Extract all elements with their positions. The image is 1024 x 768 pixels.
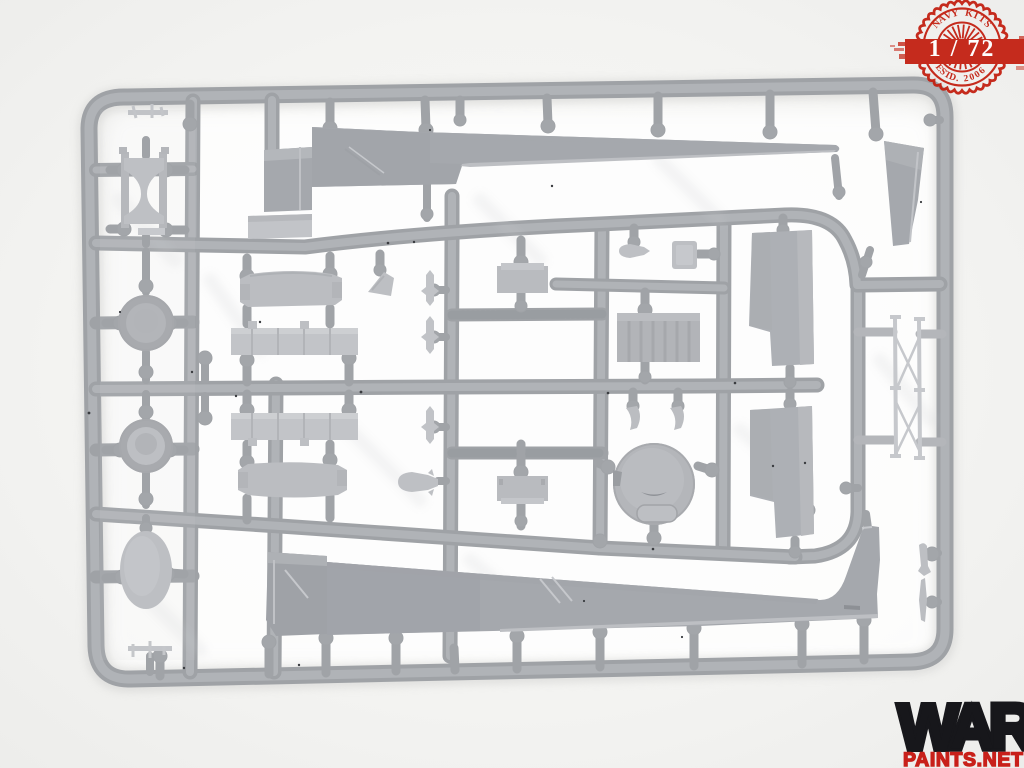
svg-text:1 / 72: 1 / 72: [929, 36, 996, 62]
svg-text:PAINTS.NET: PAINTS.NET: [903, 749, 1023, 768]
